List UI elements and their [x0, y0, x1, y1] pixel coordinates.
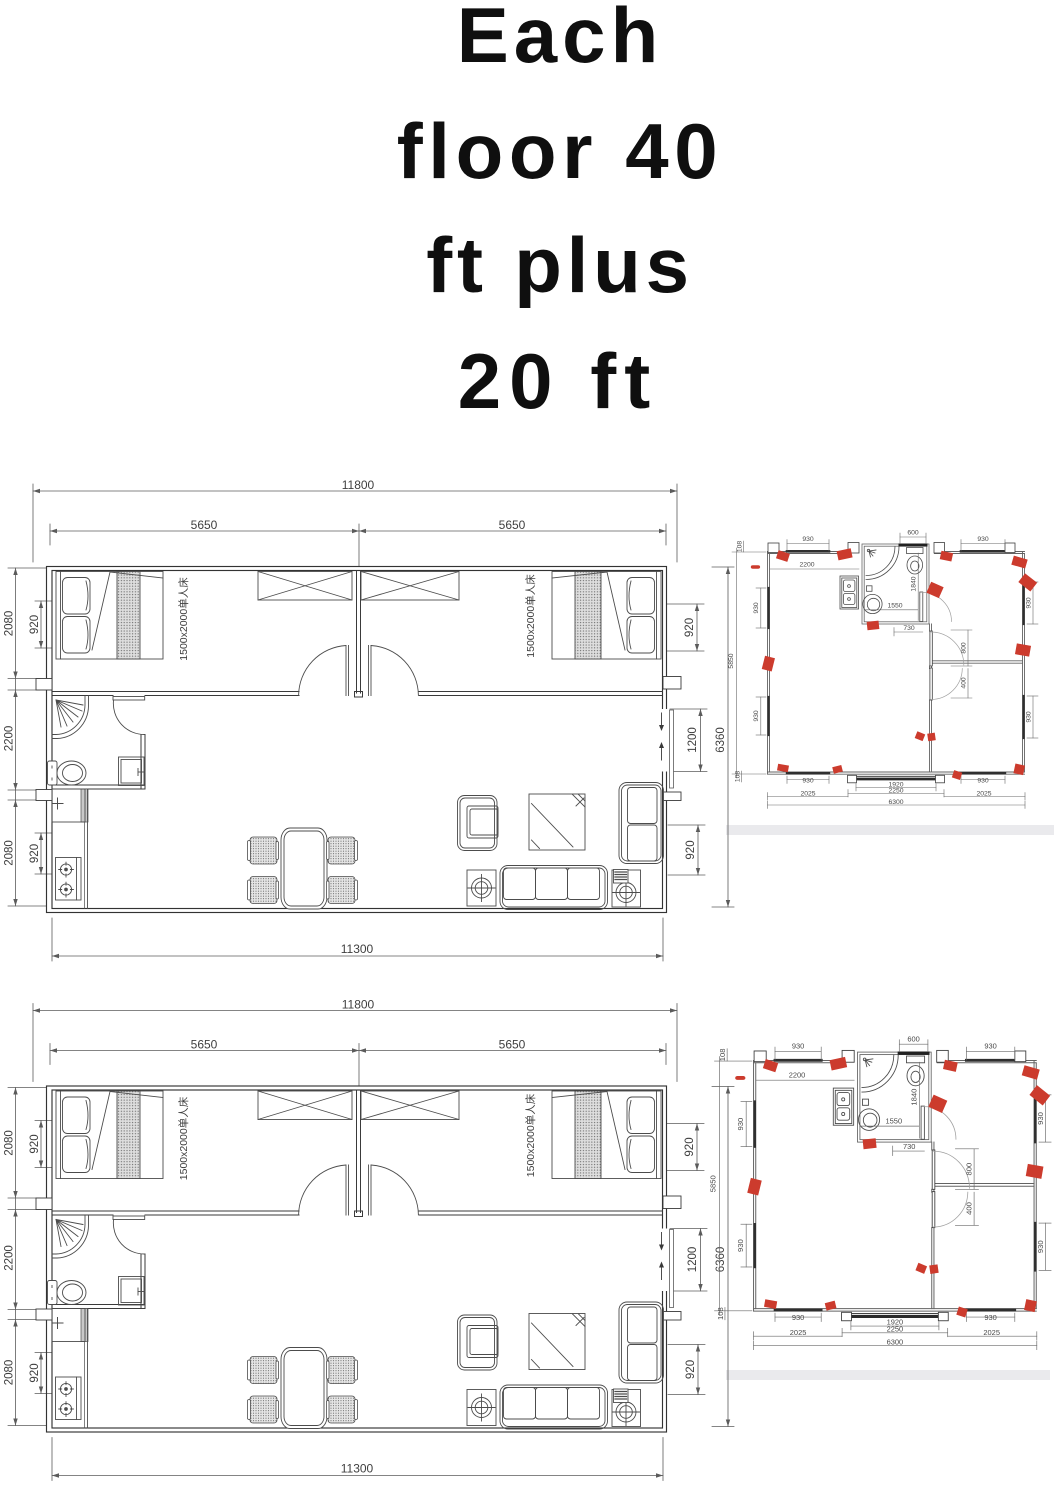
- svg-text:floor 40: floor 40: [397, 107, 724, 195]
- svg-text:5850: 5850: [728, 653, 735, 668]
- svg-text:1840: 1840: [911, 576, 918, 591]
- svg-text:20 ft: 20 ft: [458, 337, 658, 425]
- svg-text:930: 930: [1026, 597, 1033, 609]
- svg-text:6300: 6300: [888, 799, 903, 806]
- svg-text:5650: 5650: [191, 518, 218, 532]
- svg-text:600: 600: [907, 530, 919, 537]
- svg-text:2250: 2250: [888, 787, 903, 794]
- svg-text:2080: 2080: [4, 840, 16, 866]
- svg-text:11800: 11800: [342, 478, 375, 492]
- svg-text:11300: 11300: [341, 942, 374, 956]
- svg-text:930: 930: [753, 602, 760, 614]
- svg-text:ft plus: ft plus: [426, 221, 694, 309]
- svg-text:920: 920: [685, 840, 697, 859]
- svg-text:2025: 2025: [800, 790, 815, 797]
- svg-text:6360: 6360: [715, 727, 727, 753]
- svg-text:2200: 2200: [4, 726, 16, 752]
- svg-text:2025: 2025: [976, 790, 991, 797]
- svg-text:920: 920: [29, 615, 41, 634]
- svg-text:108: 108: [737, 541, 744, 553]
- svg-text:800: 800: [961, 642, 968, 654]
- svg-text:930: 930: [977, 536, 989, 543]
- svg-text:930: 930: [1026, 711, 1033, 723]
- svg-text:1200: 1200: [687, 727, 699, 753]
- svg-text:1550: 1550: [887, 603, 902, 610]
- svg-text:2080: 2080: [4, 611, 16, 637]
- svg-text:930: 930: [977, 777, 989, 784]
- svg-text:730: 730: [903, 625, 915, 632]
- svg-text:1500x2000单人床: 1500x2000单人床: [177, 577, 190, 661]
- svg-text:930: 930: [802, 536, 814, 543]
- svg-text:920: 920: [29, 844, 41, 863]
- svg-text:1500x2000单人床: 1500x2000单人床: [524, 574, 537, 658]
- svg-text:Each: Each: [457, 0, 663, 79]
- svg-text:920: 920: [684, 618, 696, 637]
- svg-text:930: 930: [753, 710, 760, 722]
- svg-text:2200: 2200: [799, 562, 814, 569]
- svg-text:108: 108: [735, 771, 742, 783]
- svg-text:400: 400: [961, 677, 968, 689]
- svg-text:930: 930: [802, 777, 814, 784]
- svg-text:5650: 5650: [499, 518, 526, 532]
